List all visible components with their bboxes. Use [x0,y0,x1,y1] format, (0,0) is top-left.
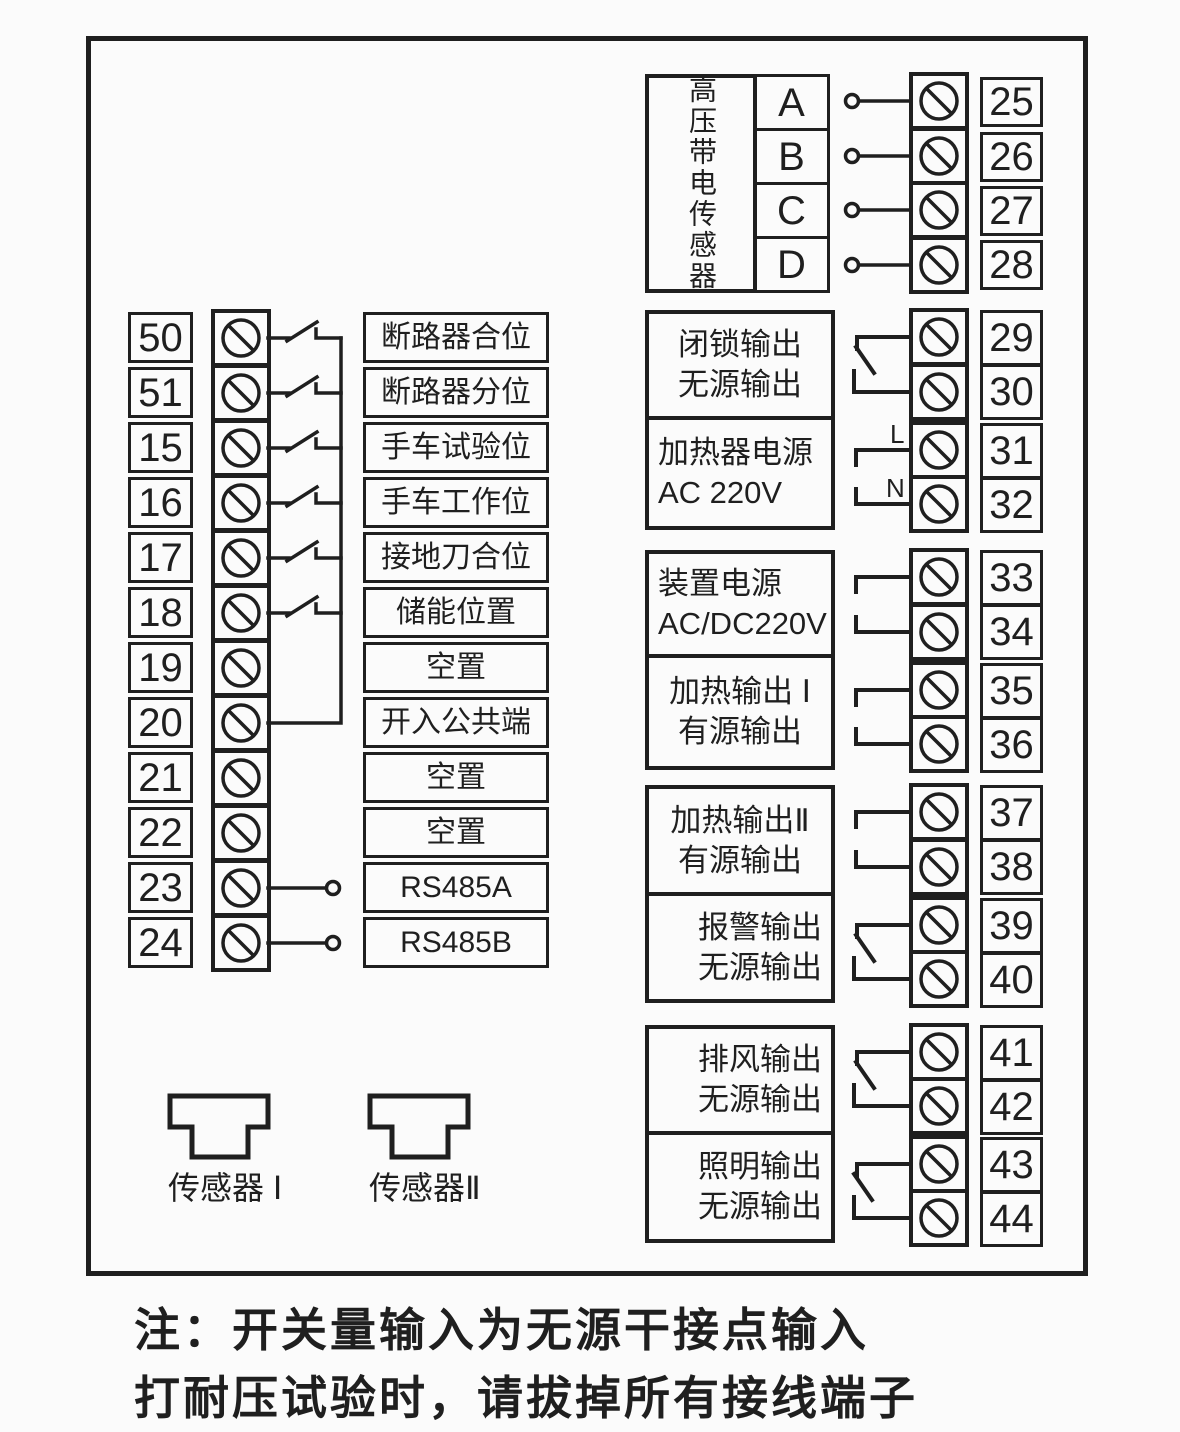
terminal-number: 35 [980,663,1043,719]
hv-sensor-title: 高压带电传感器 [681,75,721,292]
input-signal-label: 开入公共端 [363,697,549,748]
input-signal-label: 储能位置 [363,587,549,638]
input-signal-label: 空置 [363,752,549,803]
terminal-number: 27 [980,186,1043,236]
terminal-number: 43 [980,1137,1043,1193]
terminal-number: 25 [980,77,1043,127]
output-block: 报警输出 无源输出 [645,892,835,1003]
phase-cell: D [753,236,830,293]
input-signal-label: 接地刀合位 [363,532,549,583]
output-label: 无源输出 [698,948,822,988]
output-block: 闭锁输出 无源输出 [645,310,835,420]
terminal-number: 32 [980,477,1043,533]
note-line-2: 打耐压试验时，请拔掉所有接线端子 [134,1362,918,1428]
terminal-wiring-diagram: 50 51 15 16 17 18 19 20 21 22 23 24 断路器合… [0,0,1180,1432]
output-label: 有源输出 [678,841,802,881]
terminal-number: 18 [128,587,193,638]
line-mark-l: L [890,421,904,447]
terminal-number: 41 [980,1025,1043,1081]
output-label: 装置电源 [658,564,782,604]
input-signal-label: 断路器合位 [363,312,549,363]
terminal-number: 15 [128,422,193,473]
terminal-number: 22 [128,807,193,858]
sensor-caption: 传感器Ⅱ [369,1172,481,1204]
input-signal-label: 手车试验位 [363,422,549,473]
terminal-number: 34 [980,604,1043,660]
input-signal-label: RS485B [363,917,549,968]
terminal-number: 24 [128,917,193,968]
phase-cell: B [753,128,830,185]
terminal-number: 26 [980,132,1043,182]
terminal-number: 50 [128,312,193,363]
output-label: 加热输出 Ⅰ [669,672,811,712]
output-label: 闭锁输出 [678,325,802,365]
terminal-number: 29 [980,310,1043,366]
terminal-number: 16 [128,477,193,528]
terminal-number: 19 [128,642,193,693]
terminal-number: 40 [980,952,1043,1008]
hv-sensor-block: 高压带电传感器 [645,74,757,293]
output-label: 无源输出 [698,1187,822,1227]
terminal-number: 38 [980,839,1043,895]
terminal-number: 21 [128,752,193,803]
output-label: 报警输出 [698,908,822,948]
input-signal-label: 手车工作位 [363,477,549,528]
terminal-number: 33 [980,550,1043,606]
input-signal-label: 断路器分位 [363,367,549,418]
output-block: 排风输出 无源输出 [645,1025,835,1135]
output-block: 加热输出 Ⅰ 有源输出 [645,654,835,770]
note-line-1: 注：开关量输入为无源干接点输入 [134,1294,869,1360]
output-label: AC/DC220V [658,604,827,644]
terminal-number: 42 [980,1079,1043,1135]
input-signal-label: RS485A [363,862,549,913]
terminal-number: 20 [128,697,193,748]
terminal-number: 39 [980,898,1043,954]
terminal-number: 23 [128,862,193,913]
terminal-number: 36 [980,717,1043,773]
output-label: 照明输出 [698,1147,822,1187]
terminal-number: 31 [980,423,1043,479]
neutral-mark-n: N [886,475,905,501]
output-label: 加热器电源 [658,433,813,473]
output-label: 无源输出 [698,1080,822,1120]
output-label: 排风输出 [698,1040,822,1080]
output-block: 照明输出 无源输出 [645,1131,835,1243]
output-block: 装置电源 AC/DC220V [645,550,835,658]
output-block: 加热输出Ⅱ 有源输出 [645,785,835,896]
diagram-border [86,36,1088,1276]
output-label: AC 220V [658,473,782,513]
sensor-caption: 传感器 Ⅰ [168,1172,282,1204]
terminal-number: 37 [980,785,1043,841]
phase-cell: A [753,74,830,131]
input-signal-label: 空置 [363,807,549,858]
terminal-number: 28 [980,240,1043,290]
terminal-number: 30 [980,364,1043,420]
output-label: 有源输出 [678,712,802,752]
terminal-number: 44 [980,1191,1043,1247]
input-signal-label: 空置 [363,642,549,693]
terminal-number: 17 [128,532,193,583]
terminal-number: 51 [128,367,193,418]
output-block: 加热器电源 AC 220V [645,416,835,530]
output-label: 加热输出Ⅱ [670,801,809,841]
phase-cell: C [753,182,830,239]
output-label: 无源输出 [678,365,802,405]
